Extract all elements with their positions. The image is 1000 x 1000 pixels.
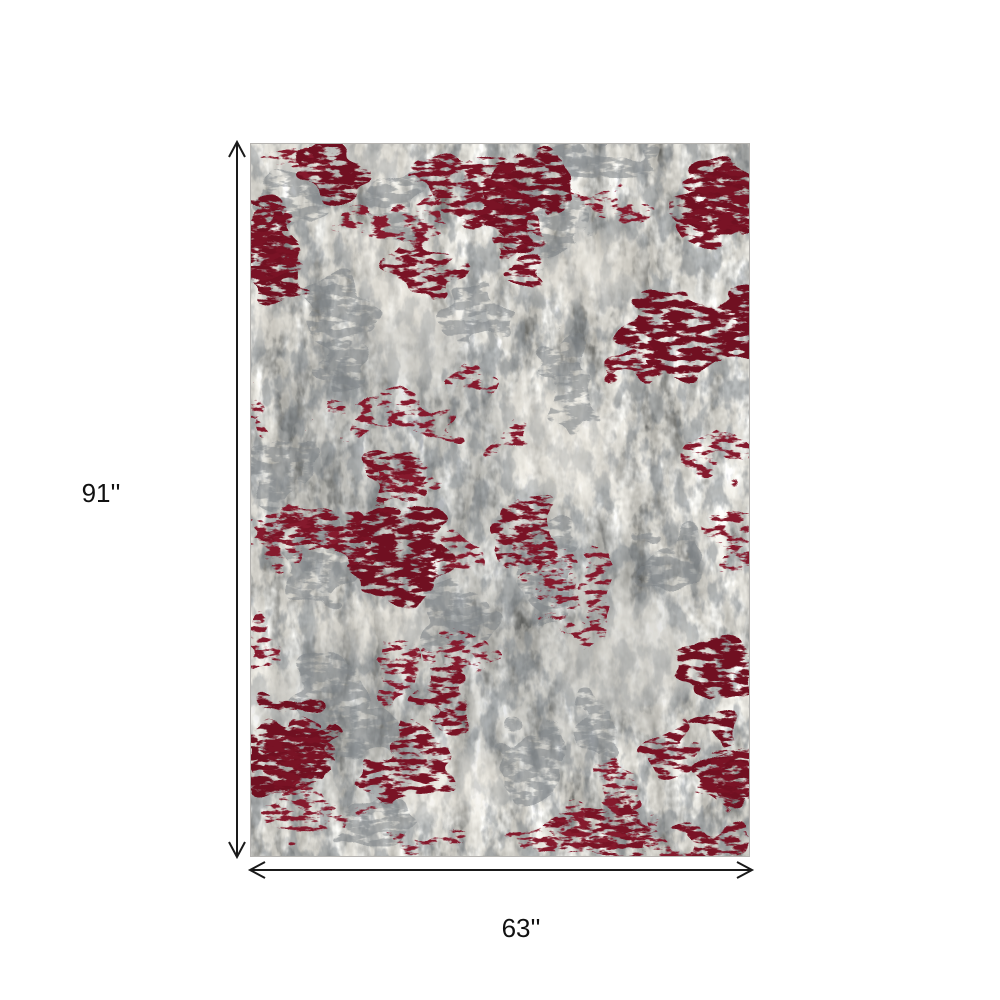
svg-text:91'': 91'' — [82, 478, 121, 508]
svg-text:63'': 63'' — [502, 913, 541, 943]
